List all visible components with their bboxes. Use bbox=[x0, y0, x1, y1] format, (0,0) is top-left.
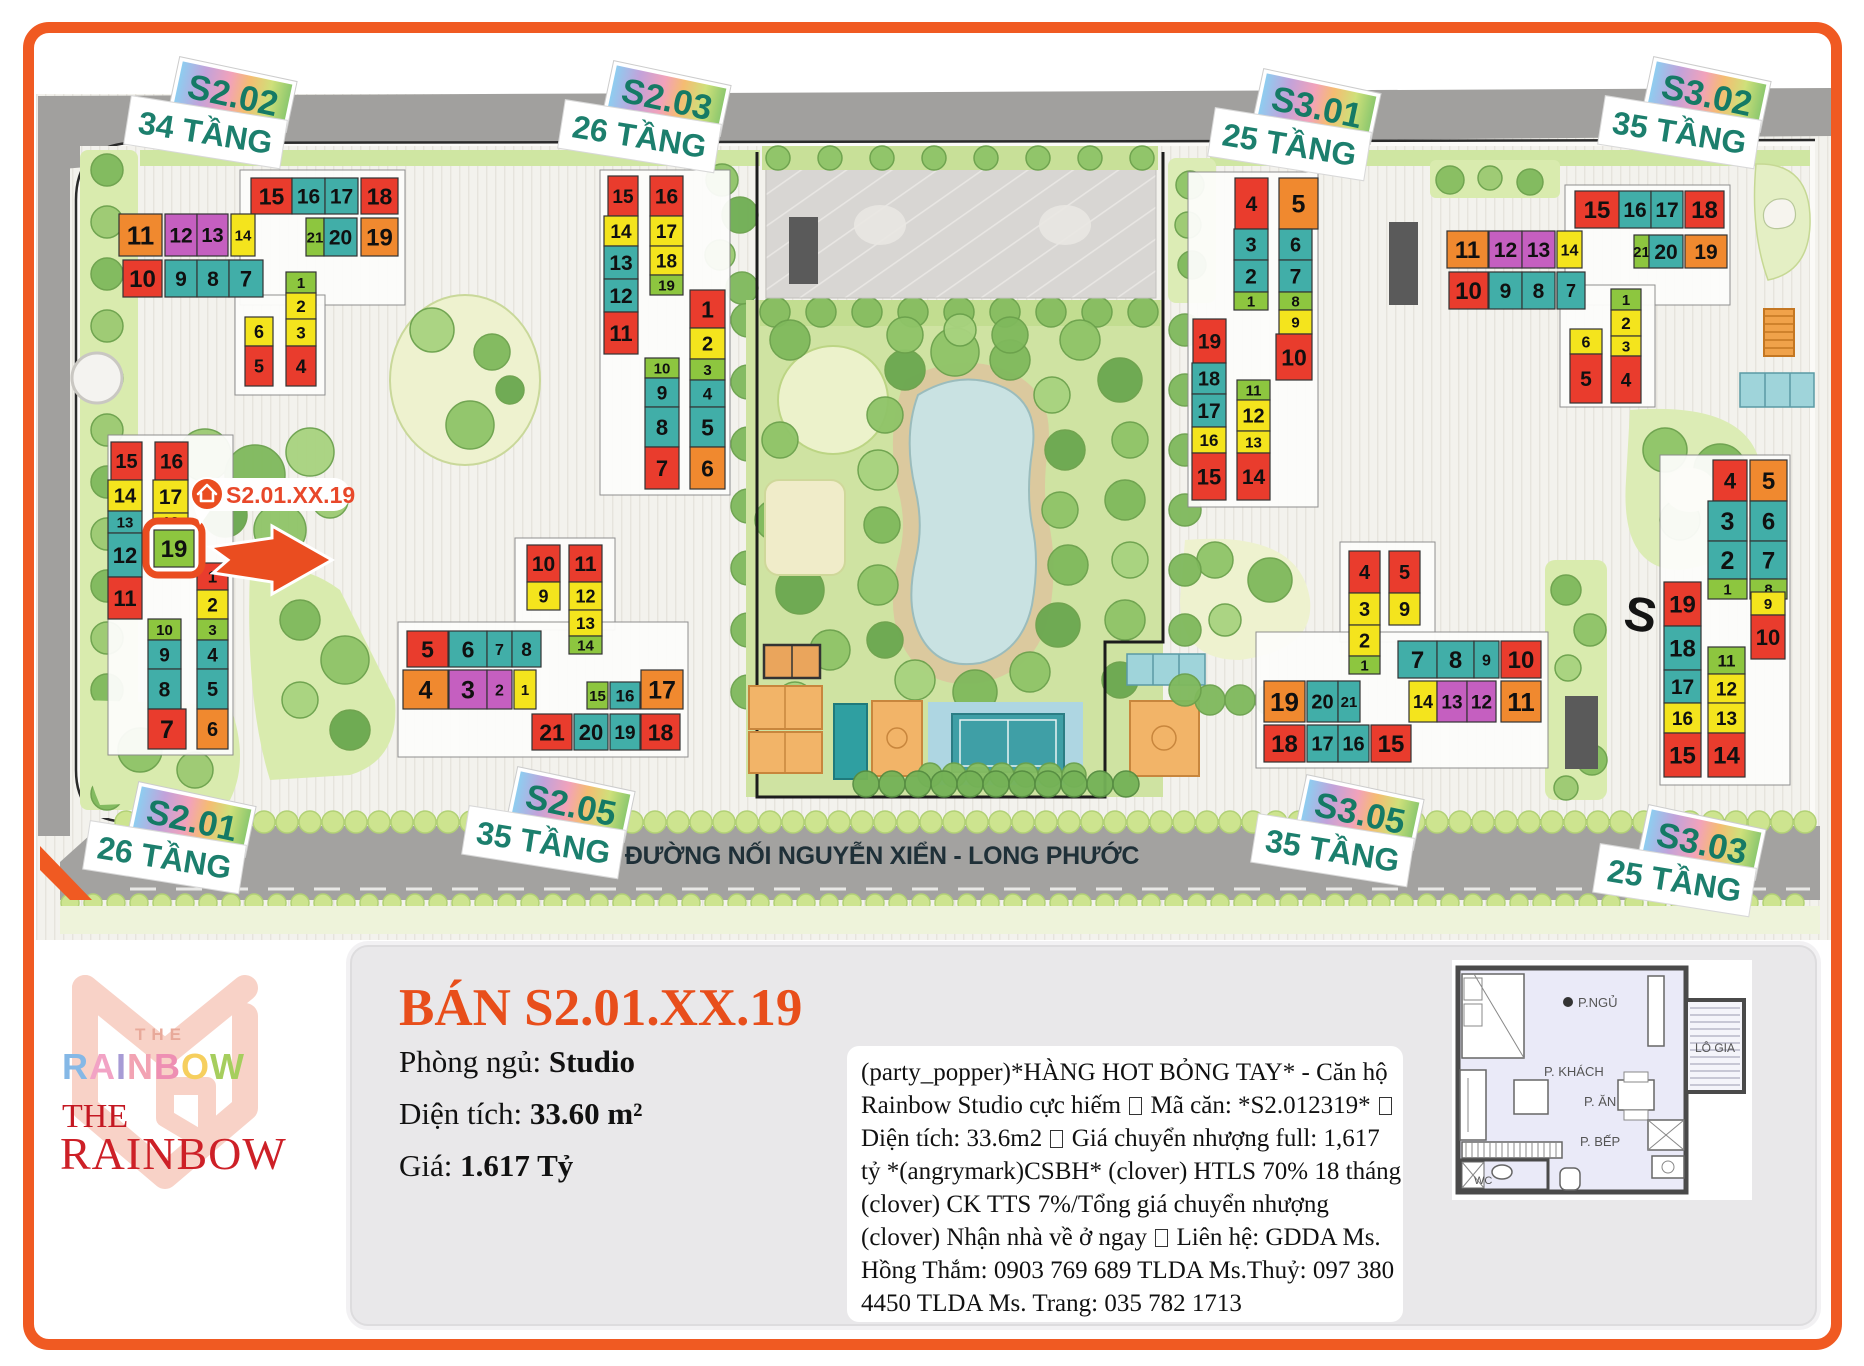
svg-text:P. ĂN: P. ĂN bbox=[1584, 1094, 1616, 1109]
svg-text:20: 20 bbox=[579, 720, 603, 745]
svg-text:3: 3 bbox=[461, 677, 475, 705]
svg-text:9: 9 bbox=[159, 645, 170, 666]
svg-text:10: 10 bbox=[1756, 625, 1780, 650]
svg-text:6: 6 bbox=[701, 455, 714, 481]
svg-text:14: 14 bbox=[610, 222, 632, 243]
svg-text:4: 4 bbox=[207, 645, 218, 666]
svg-text:17: 17 bbox=[1655, 199, 1678, 222]
svg-text:4: 4 bbox=[419, 677, 433, 705]
svg-text:7: 7 bbox=[495, 642, 504, 659]
svg-text:6: 6 bbox=[207, 719, 218, 741]
svg-text:1: 1 bbox=[1360, 657, 1368, 674]
svg-text:14: 14 bbox=[577, 637, 594, 654]
svg-text:4: 4 bbox=[1359, 562, 1371, 584]
svg-text:15: 15 bbox=[1197, 464, 1221, 489]
svg-text:21: 21 bbox=[1633, 244, 1650, 261]
svg-text:17: 17 bbox=[330, 186, 353, 209]
svg-text:14: 14 bbox=[235, 227, 252, 244]
svg-text:6: 6 bbox=[462, 636, 475, 662]
svg-text:9: 9 bbox=[1291, 314, 1299, 331]
svg-text:13: 13 bbox=[117, 514, 134, 531]
svg-text:8: 8 bbox=[207, 268, 219, 291]
svg-text:19: 19 bbox=[366, 225, 393, 252]
svg-text:3: 3 bbox=[1622, 338, 1630, 355]
svg-text:10: 10 bbox=[156, 622, 173, 639]
svg-text:8: 8 bbox=[1533, 280, 1545, 303]
svg-text:8: 8 bbox=[656, 415, 668, 440]
svg-text:15: 15 bbox=[1584, 197, 1611, 224]
svg-text:13: 13 bbox=[1527, 239, 1550, 262]
svg-text:5: 5 bbox=[1762, 468, 1775, 495]
svg-text:P. KHÁCH: P. KHÁCH bbox=[1544, 1064, 1604, 1079]
svg-text:13: 13 bbox=[1245, 434, 1262, 451]
svg-text:2: 2 bbox=[1621, 314, 1630, 333]
svg-text:16: 16 bbox=[655, 186, 678, 209]
svg-text:6: 6 bbox=[254, 322, 264, 342]
svg-text:5: 5 bbox=[207, 679, 218, 701]
svg-text:2: 2 bbox=[1721, 547, 1735, 575]
svg-text:7: 7 bbox=[1762, 548, 1775, 575]
svg-text:16: 16 bbox=[1342, 734, 1364, 756]
svg-text:15: 15 bbox=[259, 183, 285, 209]
svg-text:12: 12 bbox=[113, 543, 137, 568]
svg-text:5: 5 bbox=[1580, 368, 1592, 391]
svg-text:2: 2 bbox=[207, 595, 218, 616]
svg-text:16: 16 bbox=[1200, 431, 1219, 450]
svg-text:4: 4 bbox=[1246, 193, 1258, 216]
svg-text:14: 14 bbox=[114, 486, 137, 508]
svg-text:14: 14 bbox=[1713, 743, 1740, 770]
svg-text:5: 5 bbox=[1399, 562, 1410, 584]
svg-text:7: 7 bbox=[240, 266, 252, 291]
svg-text:12: 12 bbox=[1242, 406, 1264, 428]
svg-text:16: 16 bbox=[160, 451, 183, 474]
svg-text:17: 17 bbox=[159, 486, 182, 509]
svg-text:12: 12 bbox=[1494, 239, 1517, 262]
svg-text:19: 19 bbox=[1669, 592, 1696, 619]
svg-text:15: 15 bbox=[1669, 743, 1696, 770]
svg-text:11: 11 bbox=[127, 220, 155, 250]
svg-text:7: 7 bbox=[160, 716, 174, 744]
svg-text:19: 19 bbox=[161, 536, 188, 563]
svg-text:6: 6 bbox=[1582, 334, 1591, 351]
svg-text:P.NGỦ: P.NGỦ bbox=[1578, 995, 1618, 1010]
svg-text:17: 17 bbox=[656, 222, 677, 243]
svg-text:17: 17 bbox=[1197, 400, 1220, 423]
svg-text:6: 6 bbox=[1762, 509, 1775, 536]
svg-text:11: 11 bbox=[1718, 652, 1736, 671]
svg-text:19: 19 bbox=[658, 277, 675, 294]
svg-text:18: 18 bbox=[1669, 636, 1696, 663]
svg-text:5: 5 bbox=[421, 636, 434, 662]
svg-text:1: 1 bbox=[1622, 292, 1630, 309]
svg-text:10: 10 bbox=[1455, 278, 1482, 305]
svg-text:LÔ GIA: LÔ GIA bbox=[1695, 1040, 1735, 1055]
svg-text:3: 3 bbox=[208, 622, 216, 639]
svg-text:15: 15 bbox=[612, 187, 634, 208]
svg-text:3: 3 bbox=[296, 324, 305, 343]
svg-text:7: 7 bbox=[1566, 281, 1576, 301]
svg-text:10: 10 bbox=[1281, 344, 1307, 370]
svg-text:21: 21 bbox=[1341, 694, 1358, 711]
svg-text:9: 9 bbox=[657, 383, 668, 404]
svg-text:5: 5 bbox=[254, 356, 264, 376]
svg-text:10: 10 bbox=[654, 360, 671, 377]
svg-text:2: 2 bbox=[495, 682, 504, 699]
svg-text:2: 2 bbox=[702, 334, 713, 356]
svg-text:16: 16 bbox=[616, 687, 635, 706]
svg-text:2: 2 bbox=[1359, 631, 1370, 653]
svg-text:13: 13 bbox=[609, 252, 632, 275]
svg-text:1: 1 bbox=[701, 296, 714, 322]
svg-text:19: 19 bbox=[1198, 331, 1221, 354]
svg-text:9: 9 bbox=[1482, 652, 1491, 669]
svg-text:12: 12 bbox=[609, 285, 632, 308]
svg-text:14: 14 bbox=[1242, 466, 1266, 489]
svg-text:1: 1 bbox=[297, 275, 305, 292]
svg-text:13: 13 bbox=[1441, 692, 1462, 713]
svg-text:13: 13 bbox=[1716, 709, 1737, 730]
svg-text:11: 11 bbox=[1246, 382, 1262, 399]
svg-text:16: 16 bbox=[1623, 199, 1646, 222]
svg-text:19: 19 bbox=[1270, 687, 1299, 717]
svg-text:S2.01.XX.19: S2.01.XX.19 bbox=[226, 482, 355, 508]
svg-text:14: 14 bbox=[1413, 692, 1433, 712]
svg-text:7: 7 bbox=[656, 456, 668, 481]
svg-text:11: 11 bbox=[1455, 237, 1480, 264]
svg-text:15: 15 bbox=[589, 688, 606, 705]
svg-text:13: 13 bbox=[201, 225, 223, 247]
svg-text:11: 11 bbox=[1507, 687, 1535, 717]
svg-text:4: 4 bbox=[1621, 370, 1632, 391]
svg-text:9: 9 bbox=[1399, 599, 1410, 621]
svg-text:20: 20 bbox=[1654, 241, 1677, 264]
svg-text:12: 12 bbox=[169, 225, 192, 248]
svg-text:20: 20 bbox=[329, 227, 352, 250]
svg-text:21: 21 bbox=[539, 719, 565, 745]
svg-text:17: 17 bbox=[648, 677, 676, 705]
svg-text:20: 20 bbox=[1311, 692, 1333, 714]
svg-text:8: 8 bbox=[1449, 647, 1462, 674]
svg-text:WC: WC bbox=[1474, 1175, 1492, 1187]
svg-text:11: 11 bbox=[113, 586, 136, 611]
svg-text:21: 21 bbox=[307, 229, 324, 246]
svg-text:9: 9 bbox=[175, 268, 187, 291]
svg-text:9: 9 bbox=[1764, 596, 1772, 613]
svg-text:3: 3 bbox=[1245, 235, 1256, 257]
svg-text:5: 5 bbox=[701, 414, 714, 440]
svg-text:2: 2 bbox=[296, 297, 305, 316]
svg-text:18: 18 bbox=[656, 251, 677, 272]
svg-text:12: 12 bbox=[575, 586, 595, 606]
svg-text:10: 10 bbox=[129, 266, 156, 293]
svg-text:5: 5 bbox=[1292, 191, 1306, 219]
svg-text:ĐƯỜNG NỐI NGUYỄN XIỂN - LONG P: ĐƯỜNG NỐI NGUYỄN XIỂN - LONG PHƯỚC bbox=[625, 840, 1139, 870]
svg-text:19: 19 bbox=[614, 723, 635, 744]
svg-text:13: 13 bbox=[576, 614, 595, 633]
svg-text:8: 8 bbox=[521, 640, 532, 661]
svg-text:4: 4 bbox=[296, 357, 307, 378]
svg-text:11: 11 bbox=[609, 321, 632, 346]
svg-text:8: 8 bbox=[1291, 293, 1299, 310]
svg-text:19: 19 bbox=[1694, 241, 1717, 264]
svg-text:3: 3 bbox=[1721, 508, 1735, 536]
svg-text:1: 1 bbox=[1723, 581, 1731, 598]
svg-text:10: 10 bbox=[1508, 647, 1535, 674]
svg-text:18: 18 bbox=[1198, 369, 1220, 391]
svg-text:15: 15 bbox=[1378, 731, 1405, 758]
svg-text:12: 12 bbox=[1716, 679, 1737, 700]
svg-text:4: 4 bbox=[703, 385, 713, 404]
svg-text:18: 18 bbox=[648, 719, 674, 745]
svg-text:9: 9 bbox=[538, 586, 548, 606]
svg-text:9: 9 bbox=[1500, 280, 1512, 303]
svg-text:1: 1 bbox=[521, 682, 529, 699]
svg-text:10: 10 bbox=[532, 553, 555, 576]
svg-text:3: 3 bbox=[1359, 599, 1370, 621]
svg-text:17: 17 bbox=[1671, 676, 1694, 699]
svg-text:11: 11 bbox=[574, 553, 597, 576]
svg-text:2: 2 bbox=[1245, 266, 1257, 289]
svg-text:16: 16 bbox=[297, 186, 320, 209]
svg-text:12: 12 bbox=[1471, 692, 1492, 713]
svg-text:18: 18 bbox=[367, 183, 393, 209]
svg-text:8: 8 bbox=[159, 679, 171, 702]
svg-text:14: 14 bbox=[1561, 242, 1579, 259]
svg-text:6: 6 bbox=[1290, 235, 1301, 257]
svg-text:7: 7 bbox=[1290, 266, 1302, 289]
svg-text:18: 18 bbox=[1271, 731, 1298, 758]
svg-text:3: 3 bbox=[703, 362, 711, 379]
svg-text:7: 7 bbox=[1411, 647, 1424, 674]
svg-text:18: 18 bbox=[1691, 197, 1718, 224]
svg-text:1: 1 bbox=[1247, 293, 1255, 310]
svg-text:16: 16 bbox=[1672, 709, 1693, 730]
svg-text:17: 17 bbox=[1311, 734, 1333, 756]
svg-text:4: 4 bbox=[1724, 468, 1737, 493]
svg-text:15: 15 bbox=[115, 451, 137, 473]
svg-text:P. BẾP: P. BẾP bbox=[1580, 1134, 1620, 1149]
